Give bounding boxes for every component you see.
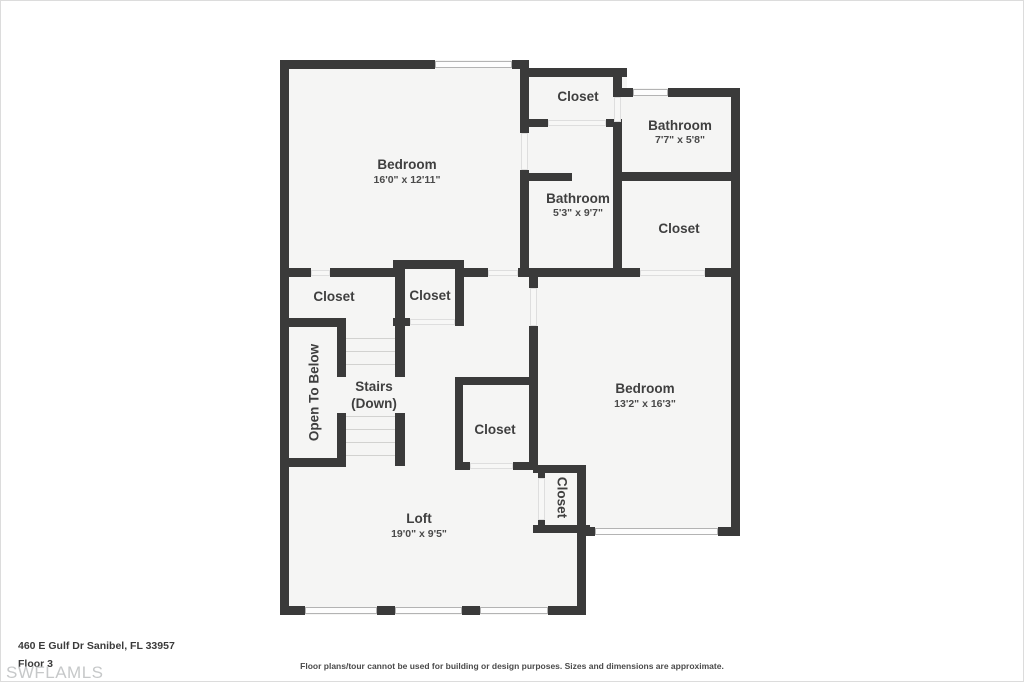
door-opening: [548, 120, 606, 126]
room-label-closet-hall: Closet: [390, 288, 470, 303]
room-label-bedroom-2: Bedroom: [565, 381, 725, 396]
wall-segment: [462, 268, 488, 277]
wall-segment: [577, 465, 586, 615]
wall-segment: [731, 88, 740, 536]
wall-segment: [377, 606, 395, 615]
room-dims-loft: 19'0" x 9'5": [339, 528, 499, 541]
floor-plan-page: Bedroom 16'0" x 12'11" Closet Bathroom 7…: [0, 0, 1024, 682]
wall-segment: [525, 268, 640, 277]
wall-segment: [582, 527, 595, 536]
wall-segment: [668, 88, 740, 97]
disclaimer-text: Floor plans/tour cannot be used for buil…: [0, 661, 1024, 671]
wall-segment: [280, 606, 305, 615]
stairs-label-line2: (Down): [351, 396, 397, 411]
room-label-closet-right: Closet: [619, 221, 739, 236]
wall-segment: [705, 268, 740, 277]
door-opening: [470, 463, 513, 469]
room-label-bedroom-1: Bedroom: [307, 157, 507, 172]
wall-segment: [529, 173, 572, 181]
room-dims-bedroom-2: 13'2" x 16'3": [565, 398, 725, 411]
wall-segment: [520, 68, 627, 77]
wall-segment: [518, 268, 525, 277]
room-label-bathroom-top: Bathroom: [620, 118, 740, 133]
room-label-loft: Loft: [339, 511, 499, 526]
door-opening: [530, 288, 537, 326]
door-opening: [311, 270, 330, 276]
room-label-stairs: Stairs (Down): [333, 377, 415, 413]
room-label-closet-left: Closet: [284, 289, 384, 304]
wall-segment: [520, 170, 529, 277]
window: [305, 607, 377, 614]
wall-segment: [280, 60, 289, 615]
door-opening: [521, 133, 528, 170]
wall-segment: [462, 606, 480, 615]
room-dims-bedroom-1: 16'0" x 12'11": [307, 174, 507, 187]
window: [395, 607, 462, 614]
wall-segment: [393, 318, 410, 326]
wall-segment: [613, 172, 740, 181]
room-label-closet-top: Closet: [528, 89, 628, 104]
room-label-bathroom-mid: Bathroom: [518, 191, 638, 206]
room-label-open-to-below: Open To Below: [307, 318, 322, 468]
window: [595, 528, 718, 535]
wall-segment: [280, 60, 435, 69]
wall-segment: [330, 268, 397, 277]
window: [633, 89, 668, 96]
door-opening: [640, 270, 705, 276]
window: [480, 607, 548, 614]
floor-area: [618, 88, 740, 277]
room-dims-bathroom-top: 7'7" x 5'8": [620, 134, 740, 147]
door-opening: [410, 319, 455, 325]
wall-segment: [548, 606, 586, 615]
wall-segment: [455, 462, 470, 470]
wall-segment: [529, 268, 538, 288]
wall-segment: [455, 377, 538, 385]
room-dims-bathroom-mid: 5'3" x 9'7": [518, 207, 638, 220]
wall-segment: [520, 119, 548, 127]
stairs-label-line1: Stairs: [355, 379, 393, 394]
address-text: 460 E Gulf Dr Sanibel, FL 33957: [18, 640, 175, 652]
window: [435, 61, 512, 68]
door-opening: [488, 270, 518, 276]
wall-segment: [280, 268, 311, 277]
wall-segment: [529, 326, 538, 470]
room-label-closet-mid: Closet: [455, 422, 535, 437]
wall-segment: [538, 465, 545, 478]
wall-segment: [718, 527, 740, 536]
door-opening: [538, 478, 545, 520]
room-label-closet-loft: Closet: [555, 448, 570, 548]
